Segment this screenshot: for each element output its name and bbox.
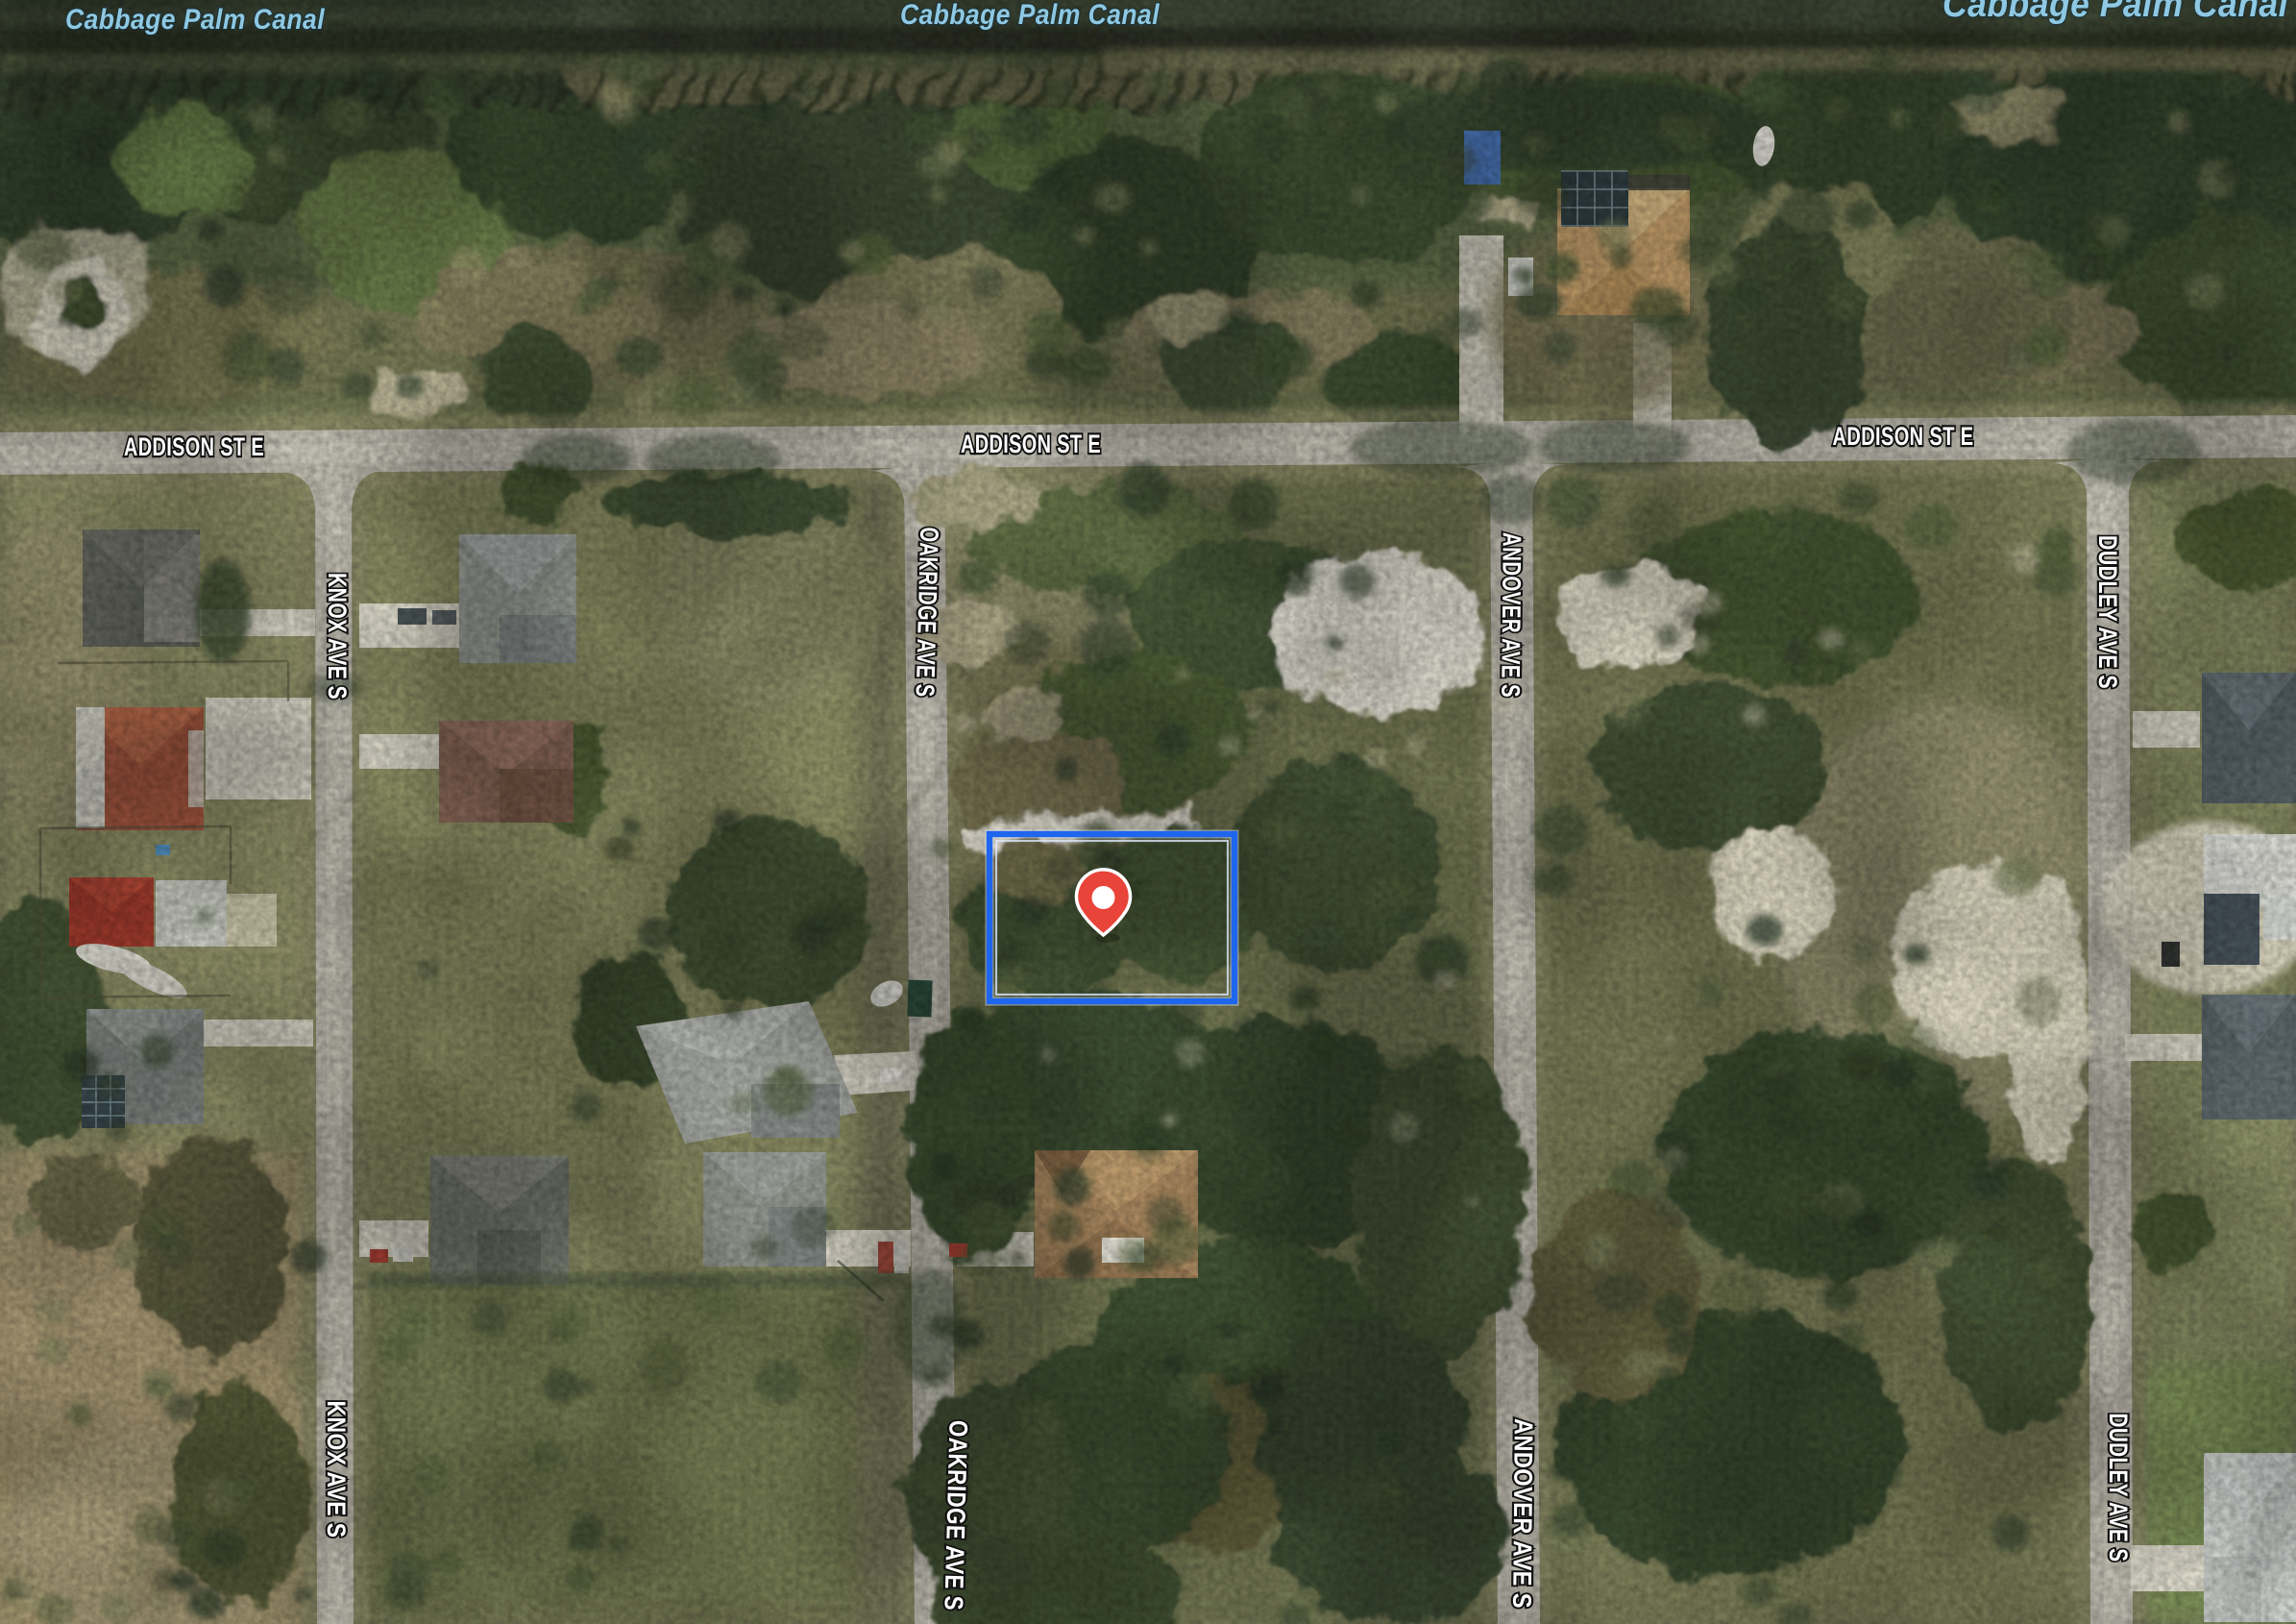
svg-text:ANDOVER AVE S: ANDOVER AVE S <box>1507 1418 1538 1609</box>
svg-text:DUDLEY AVE S: DUDLEY AVE S <box>2093 535 2122 689</box>
svg-text:ADDISON ST E: ADDISON ST E <box>124 432 264 461</box>
svg-text:ADDISON ST E: ADDISON ST E <box>961 430 1101 458</box>
svg-text:ANDOVER AVE S: ANDOVER AVE S <box>1496 532 1526 698</box>
svg-text:Cabbage Palm Canal: Cabbage Palm Canal <box>900 0 1160 31</box>
svg-text:Cabbage Palm Canal: Cabbage Palm Canal <box>65 4 325 36</box>
svg-text:ADDISON ST E: ADDISON ST E <box>1833 422 1974 451</box>
svg-text:DUDLEY AVE S: DUDLEY AVE S <box>2104 1414 2133 1562</box>
svg-text:OAKRIDGE AVE S: OAKRIDGE AVE S <box>911 527 944 698</box>
svg-text:KNOX AVE S: KNOX AVE S <box>322 1401 351 1538</box>
svg-text:KNOX AVE S: KNOX AVE S <box>323 573 352 700</box>
svg-text:Cabbage Palm Canal: Cabbage Palm Canal <box>1942 0 2289 25</box>
svg-text:OAKRIDGE AVE S: OAKRIDGE AVE S <box>939 1420 972 1612</box>
